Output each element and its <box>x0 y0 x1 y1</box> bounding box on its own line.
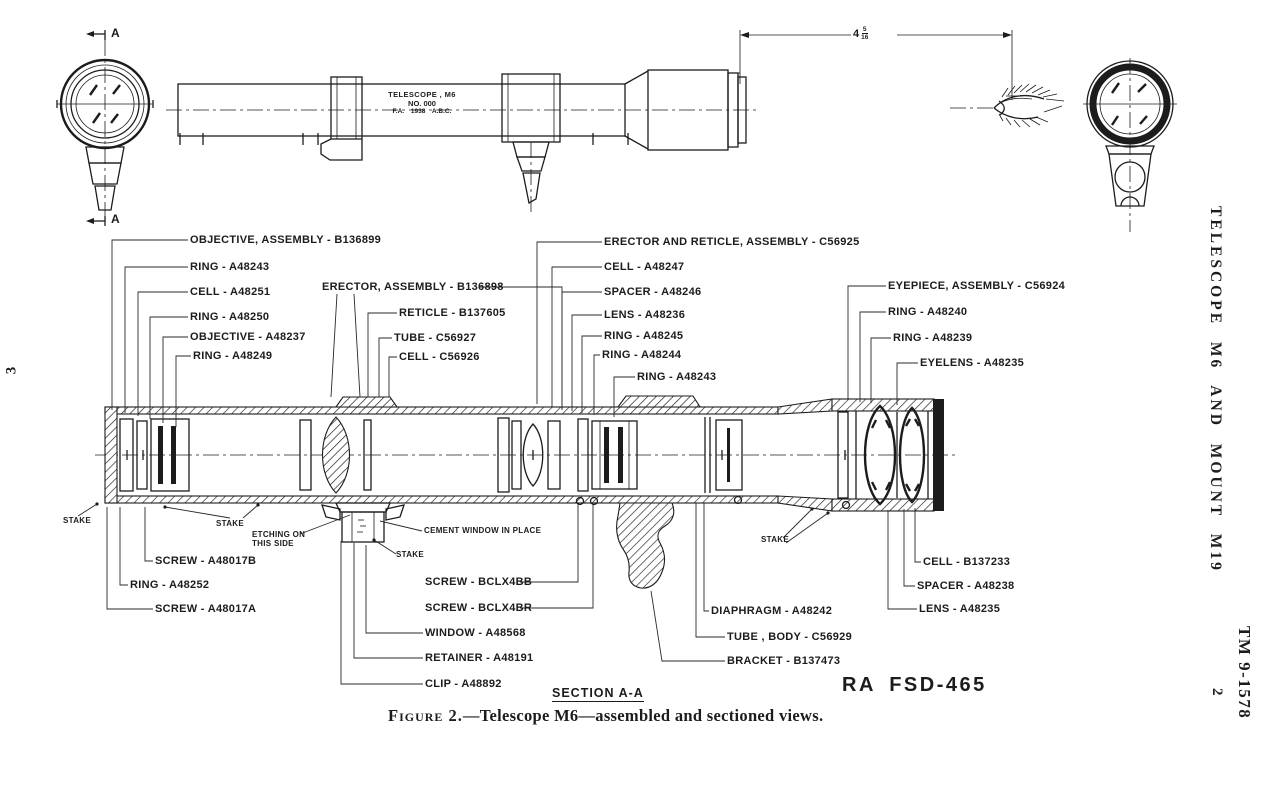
part-label-cell-a48247: CELL - A48247 <box>604 261 684 273</box>
manual-number: TM 9-1578 <box>1234 626 1254 719</box>
figure-caption: Figure 2.—Telescope M6—assembled and sec… <box>388 706 823 726</box>
part-label-ring-a48250: RING - A48250 <box>190 311 269 323</box>
eyepiece-end-view <box>1083 58 1177 232</box>
section-marker-top: A <box>111 26 120 40</box>
observer-eye-icon <box>950 84 1064 127</box>
part-label-tube-c56927: TUBE - C56927 <box>394 332 476 344</box>
objective-end-view <box>57 30 153 226</box>
telescope-marking: TELESCOPE , M6 NO. 000 F.A. 1938 A.B.C. <box>372 90 472 115</box>
part-label-ring-a48243-right: RING - A48243 <box>637 371 716 383</box>
part-label-ring-a48239: RING - A48239 <box>893 332 972 344</box>
part-label-tube-body-c56929: TUBE , BODY - C56929 <box>727 631 852 643</box>
dimension-whole: 4 <box>853 28 859 40</box>
etching-note-line-1: ETCHING ON <box>252 530 305 539</box>
annotation-stake-1: STAKE <box>63 516 91 525</box>
dimension-numerator: 5 <box>862 26 868 34</box>
paragraph-number: 2 <box>1208 688 1225 696</box>
technical-drawing: .s{stroke:#1c1c1c;fill:none;stroke-width… <box>0 0 1280 800</box>
part-label-diaphragm-a48242: DIAPHRAGM - A48242 <box>711 605 832 617</box>
figure-caption-label: Figure 2. <box>388 706 463 725</box>
part-label-window-a48568: WINDOW - A48568 <box>425 627 526 639</box>
dimension-annotation <box>728 30 1018 100</box>
part-label-screw-bclx4bb: SCREW - BCLX4BB <box>425 576 532 588</box>
part-label-lens-a48235: LENS - A48235 <box>919 603 1000 615</box>
part-label-bracket-b137473: BRACKET - B137473 <box>727 655 840 667</box>
marking-line-2: NO. 000 <box>372 99 472 108</box>
annotation-stake-3: STAKE <box>396 550 424 559</box>
diaphragm-section <box>705 417 742 504</box>
annotation-stake-2: STAKE <box>216 519 244 528</box>
section-title: SECTION A-A <box>552 686 644 702</box>
part-label-screw-bclx4br: SCREW - BCLX4BR <box>425 602 532 614</box>
section-marker-bottom: A <box>111 212 120 226</box>
part-label-screw-a48017b: SCREW - A48017B <box>155 555 256 567</box>
part-label-spacer-a48238: SPACER - A48238 <box>917 580 1014 592</box>
part-label-cell-b137233: CELL - B137233 <box>923 556 1010 568</box>
part-label-erector-reticle-assembly: ERECTOR AND RETICLE, ASSEMBLY - C56925 <box>604 236 860 248</box>
part-label-spacer-a48246: SPACER - A48246 <box>604 286 701 298</box>
section-arrow-bottom <box>86 216 105 226</box>
manual-page: .s{stroke:#1c1c1c;fill:none;stroke-width… <box>0 0 1280 800</box>
part-label-ring-a48243-left: RING - A48243 <box>190 261 269 273</box>
part-label-reticle-b137605: RETICLE - B137605 <box>399 307 506 319</box>
annotation-cement-note: CEMENT WINDOW IN PLACE <box>424 526 541 535</box>
figure-caption-text: —Telescope M6—assembled and sectioned vi… <box>463 706 823 725</box>
part-label-screw-a48017a: SCREW - A48017A <box>155 603 256 615</box>
part-label-retainer-a48191: RETAINER - A48191 <box>425 652 533 664</box>
part-label-ring-a48249: RING - A48249 <box>193 350 272 362</box>
part-label-cell-c56926: CELL - C56926 <box>399 351 480 363</box>
part-label-objective-a48237: OBJECTIVE - A48237 <box>190 331 306 343</box>
part-label-cell-a48251: CELL - A48251 <box>190 286 270 298</box>
part-label-ring-a48244: RING - A48244 <box>602 349 681 361</box>
part-label-eyepiece-assembly: EYEPIECE, ASSEMBLY - C56924 <box>888 280 1065 292</box>
marking-line-1: TELESCOPE , M6 <box>372 90 472 99</box>
window-assembly-section <box>322 503 404 542</box>
part-label-erector-assembly: ERECTOR, ASSEMBLY - B136898 <box>322 281 504 293</box>
part-label-clip-a48892: CLIP - A48892 <box>425 678 502 690</box>
dimension-fraction: 5 16 <box>861 26 868 41</box>
part-label-objective-assembly: OBJECTIVE, ASSEMBLY - B136899 <box>190 234 381 246</box>
annotation-stake-4: STAKE <box>761 535 789 544</box>
dimension-value: 4 5 16 <box>853 26 868 41</box>
eyepiece-section <box>838 406 928 509</box>
part-label-ring-a48245: RING - A48245 <box>604 330 683 342</box>
page-number: 3 <box>3 367 20 375</box>
annotation-etching-note: ETCHING ON THIS SIDE <box>252 530 305 548</box>
part-label-eyelens-a48235: EYELENS - A48235 <box>920 357 1024 369</box>
section-arrow-top <box>86 30 105 40</box>
bracket-section <box>617 503 674 588</box>
part-label-lens-a48236: LENS - A48236 <box>604 309 685 321</box>
drawing-number: RA FSD-465 <box>842 674 987 697</box>
part-label-ring-a48252: RING - A48252 <box>130 579 209 591</box>
running-header: TELESCOPE M6 AND MOUNT M19 <box>1206 206 1224 596</box>
part-label-ring-a48240: RING - A48240 <box>888 306 967 318</box>
dimension-denominator: 16 <box>861 34 868 41</box>
marking-line-3: F.A. 1938 A.B.C. <box>372 108 472 115</box>
lens-cell-section <box>577 419 638 505</box>
etching-note-line-2: THIS SIDE <box>252 539 305 548</box>
